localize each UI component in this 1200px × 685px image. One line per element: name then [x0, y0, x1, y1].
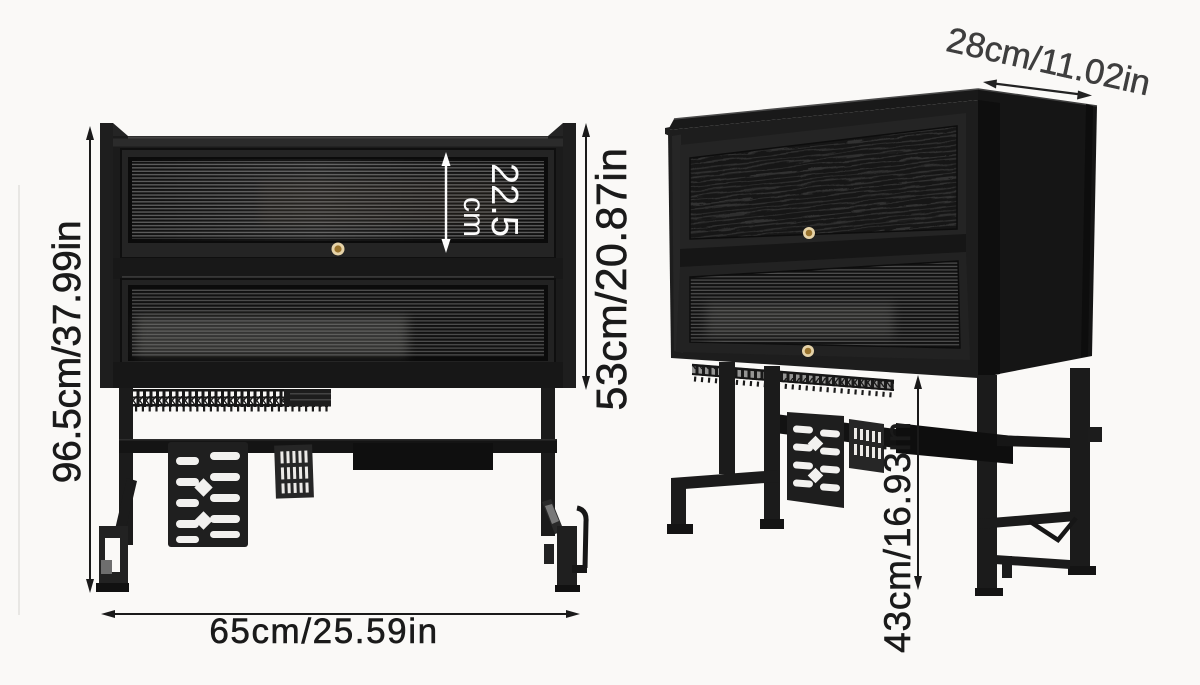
svg-text:43cm/16.93in: 43cm/16.93in	[877, 421, 918, 653]
svg-text:53cm/20.87in: 53cm/20.87in	[588, 148, 636, 411]
svg-text:96.5cm/37.99in: 96.5cm/37.99in	[46, 221, 89, 483]
svg-text:65cm/25.59in: 65cm/25.59in	[209, 612, 438, 651]
svg-text:cm: cm	[457, 197, 490, 237]
